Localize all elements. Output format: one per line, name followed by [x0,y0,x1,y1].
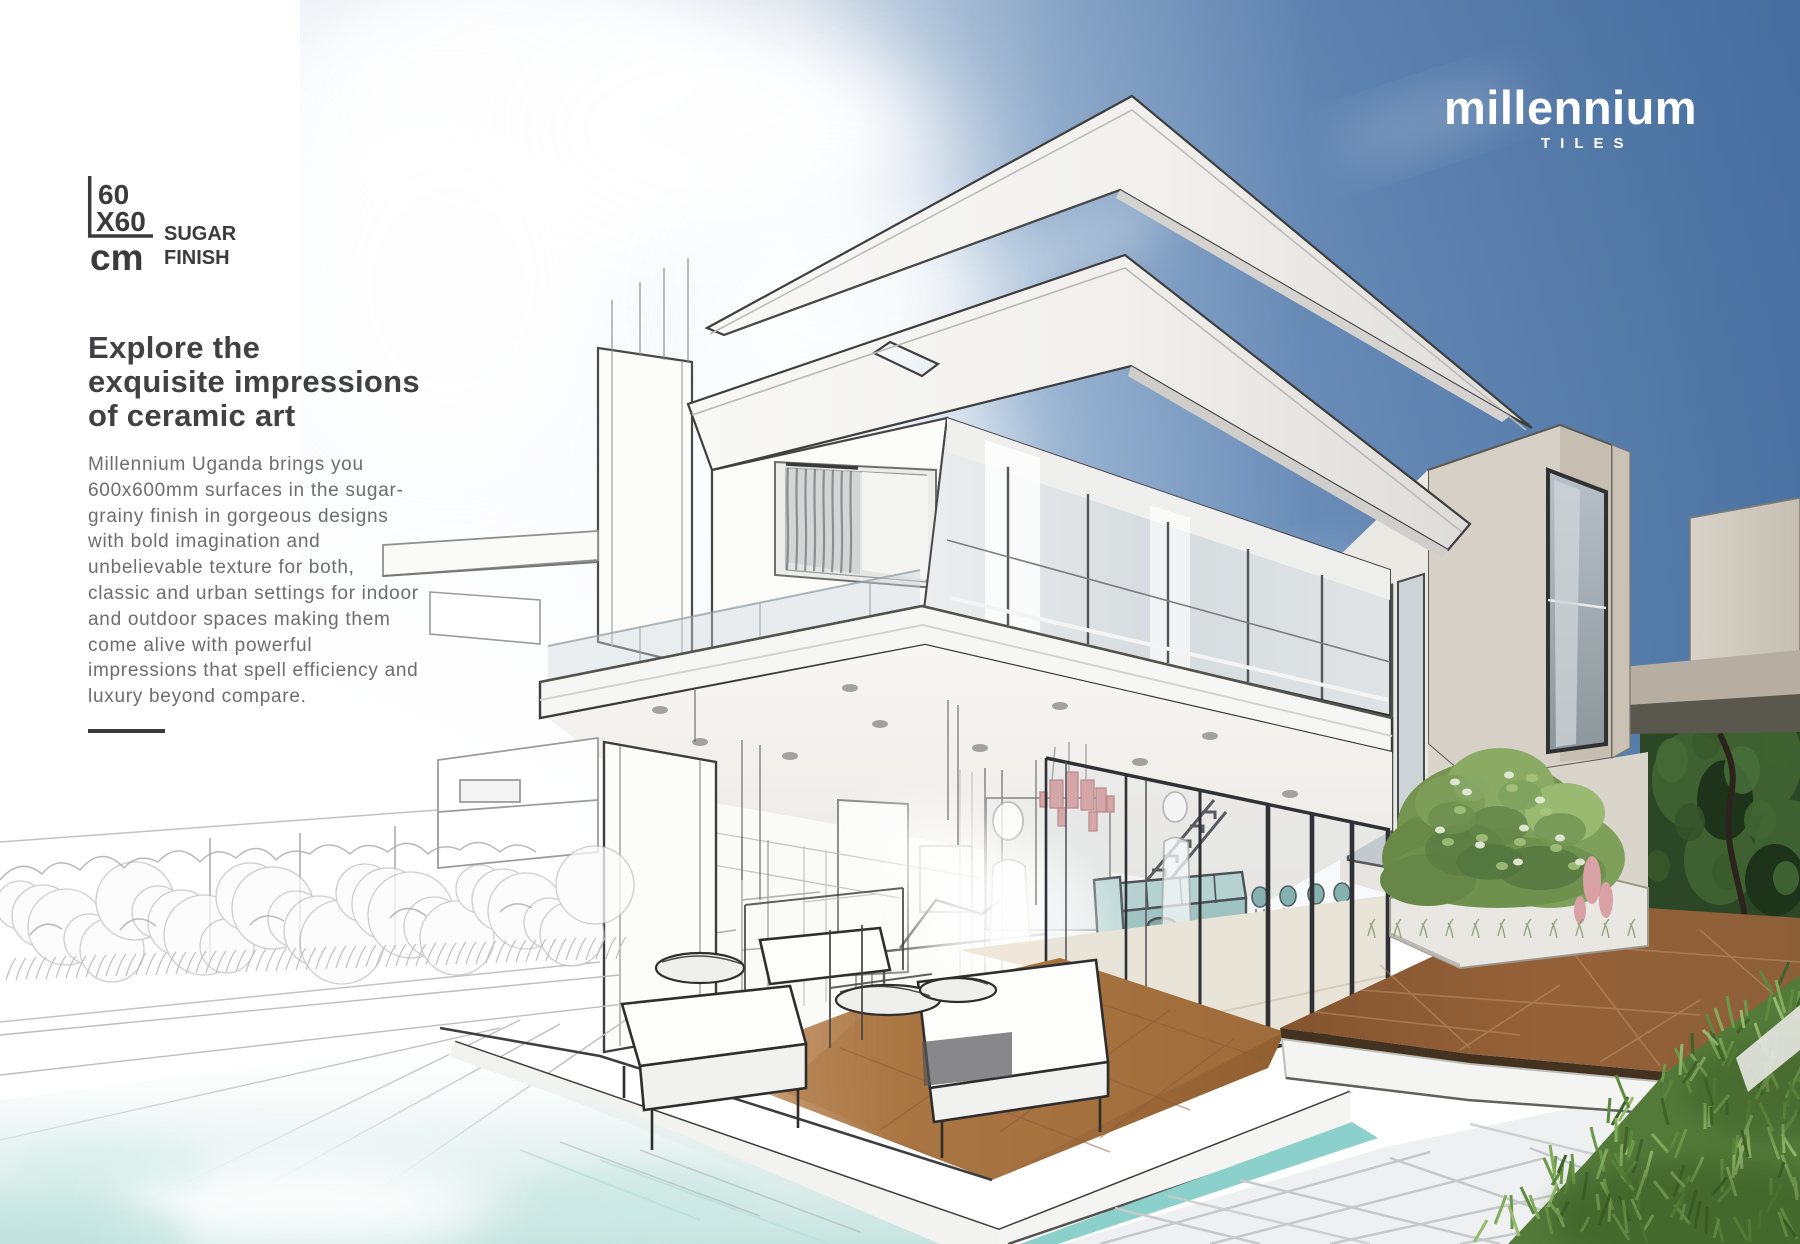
svg-text:cm: cm [90,237,143,274]
svg-text:SUGAR: SUGAR [164,223,237,245]
svg-text:FINISH: FINISH [164,247,230,269]
svg-text:X60: X60 [96,206,146,237]
